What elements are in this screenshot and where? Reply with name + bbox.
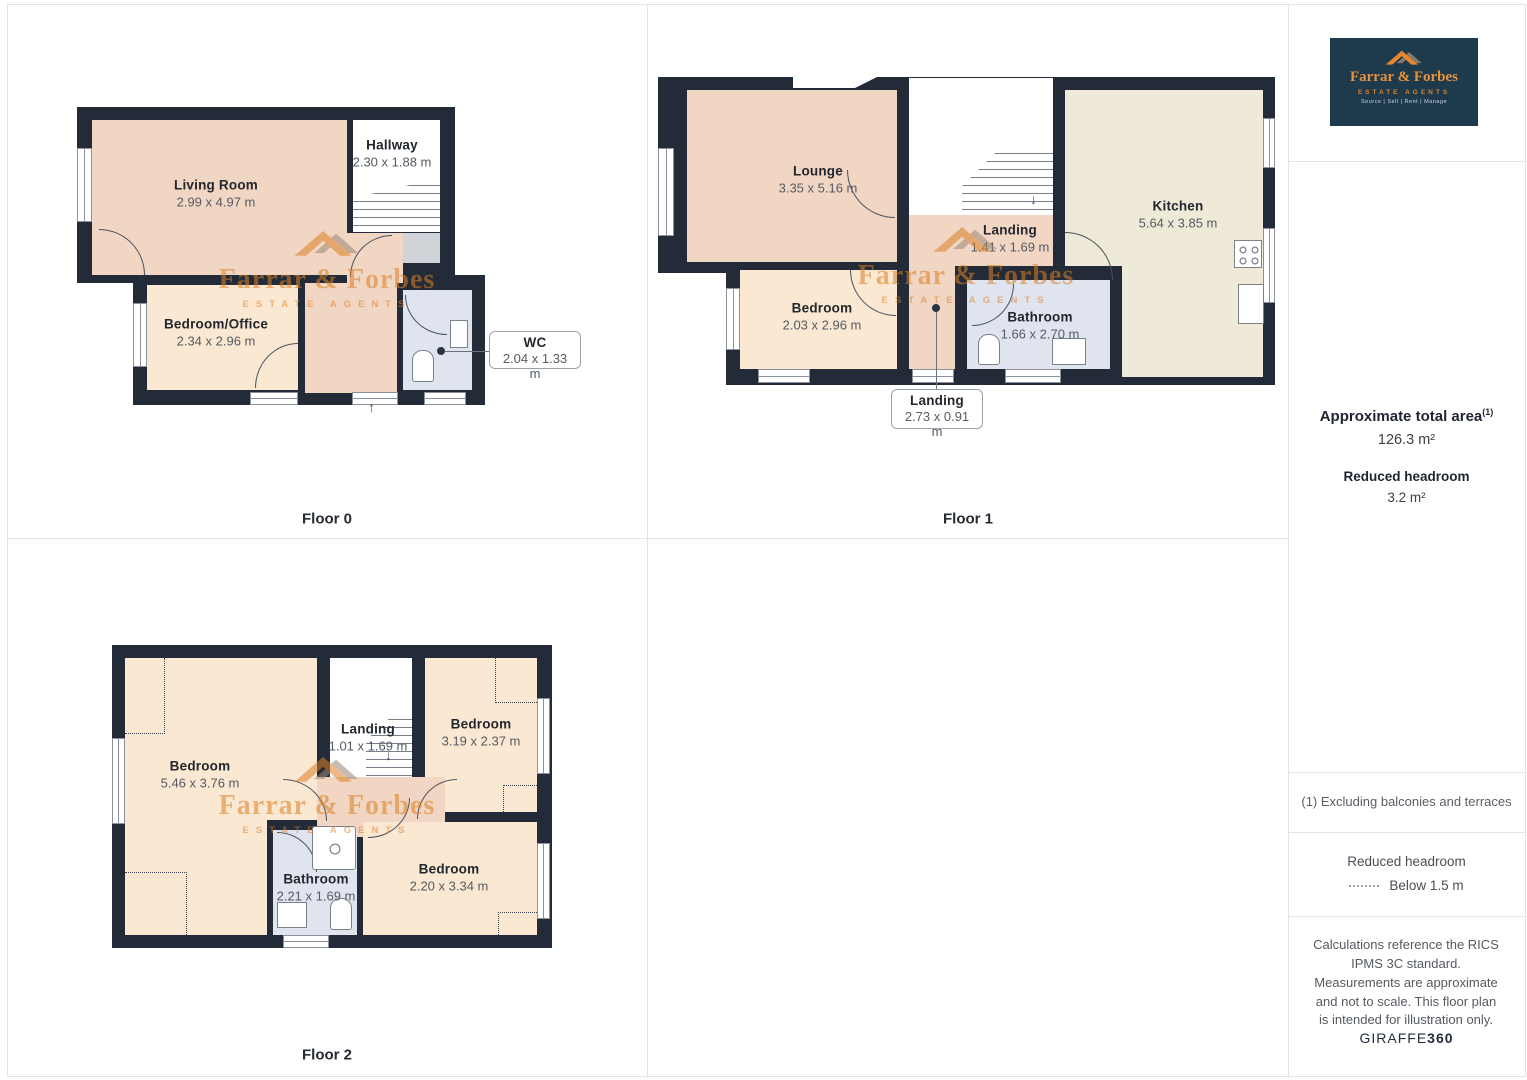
divider-sidebar-3 [1288, 832, 1525, 833]
stairs-arrow: ↓ [1030, 192, 1037, 206]
room-name: WC [498, 335, 572, 350]
divider-horizontal-plans [7, 538, 1288, 539]
legend-row: Below 1.5 m [1288, 878, 1525, 893]
room-fill-landing-corridor [909, 273, 957, 369]
disclaimer-text: Calculations reference the RICS IPMS 3C … [1311, 936, 1501, 1030]
wall-notch [793, 77, 855, 88]
window [1263, 228, 1275, 303]
room-dims: 2.73 x 0.91 m [900, 409, 974, 439]
room-label-landing: Landing 1.41 x 1.69 m [971, 223, 1050, 256]
window [250, 392, 298, 405]
floorplan-page: ↑ WC 2.04 x 1.33 m Living Room 2.99 x 4.… [0, 0, 1527, 1080]
room-label-bathroom: Bathroom 1.66 x 2.70 m [1001, 310, 1080, 343]
room-label-living-room: Living Room 2.99 x 4.97 m [174, 178, 258, 211]
reduced-headroom-area [495, 658, 537, 703]
total-area-value: 126.3 m² [1288, 432, 1525, 448]
window [537, 698, 550, 774]
legend-value: Below 1.5 m [1389, 878, 1463, 893]
room-label-landing: Landing 1.01 x 1.69 m [329, 722, 408, 755]
callout-dot [437, 347, 445, 355]
window [658, 148, 674, 236]
sink-icon [1238, 284, 1264, 324]
agency-name: Farrar & Forbes [1330, 69, 1478, 86]
storage-cupboard [403, 233, 440, 263]
shower-icon [312, 826, 356, 870]
room-fill-corridor [305, 283, 397, 393]
window [424, 392, 466, 405]
brand-giraffe: GIRAFFE [1359, 1030, 1427, 1046]
window [1005, 369, 1061, 383]
room-label-bedroom-bottomright: Bedroom 2.20 x 3.34 m [410, 862, 489, 895]
total-area-label: Approximate total area(1) [1288, 407, 1525, 425]
window [537, 843, 550, 919]
room-label-lounge: Lounge 3.35 x 5.16 m [779, 164, 858, 197]
floor1-label: Floor 1 [943, 511, 993, 528]
agency-tagline: ESTATE AGENTS [1330, 89, 1478, 96]
stove-icon [1234, 240, 1262, 268]
room-label-bedroom-office: Bedroom/Office 2.34 x 2.96 m [164, 317, 268, 350]
window [726, 288, 740, 350]
reduced-headroom-label: Reduced headroom [1288, 469, 1525, 484]
window [283, 935, 329, 948]
entry-door-threshold [352, 392, 398, 405]
floor2-label: Floor 2 [302, 1047, 352, 1064]
giraffe360-logo: GIRAFFE360 [1288, 1030, 1525, 1046]
roof-icon [1382, 48, 1426, 68]
floor0-label: Floor 0 [302, 511, 352, 528]
reduced-headroom-area [503, 785, 537, 812]
callout-dot [932, 304, 940, 312]
reduced-headroom-area [125, 872, 187, 935]
reduced-headroom-area [125, 658, 165, 734]
window [77, 148, 92, 222]
reduced-headroom-value: 3.2 m² [1288, 490, 1525, 505]
divider-sidebar-2 [1288, 772, 1525, 773]
toilet-icon [978, 334, 1000, 365]
callout-leader [936, 312, 937, 389]
window [758, 369, 810, 383]
sink-icon [450, 320, 468, 348]
footnote-marker: (1) [1482, 407, 1493, 417]
callout-leader [445, 351, 489, 352]
entry-arrow: ↑ [368, 400, 375, 414]
room-label-kitchen: Kitchen 5.64 x 3.85 m [1139, 199, 1218, 232]
agency-logo: Farrar & Forbes ESTATE AGENTS Source | S… [1330, 38, 1478, 126]
window [112, 738, 125, 824]
room-label-bedroom-large: Bedroom 5.46 x 3.76 m [161, 759, 240, 792]
divider-sidebar-4 [1288, 916, 1525, 917]
agency-services: Source | Sell | Rent | Manage [1330, 99, 1478, 105]
divider-sidebar-1 [1288, 161, 1525, 162]
room-label-hallway: Hallway 2.30 x 1.88 m [353, 138, 432, 171]
window [133, 303, 147, 367]
door-threshold [912, 369, 954, 383]
room-dims: 2.04 x 1.33 m [498, 351, 572, 381]
wc-callout: WC 2.04 x 1.33 m [489, 331, 581, 369]
sink-icon [277, 902, 307, 928]
brand-360: 360 [1427, 1030, 1453, 1046]
room-label-bedroom: Bedroom 2.03 x 2.96 m [783, 301, 862, 334]
divider-vertical-left [647, 4, 648, 1076]
landing-callout: Landing 2.73 x 0.91 m [891, 389, 983, 429]
toilet-icon [412, 350, 434, 382]
room-label-bathroom: Bathroom 2.21 x 1.69 m [277, 872, 356, 905]
footnote: (1) Excluding balconies and terraces [1288, 794, 1525, 809]
dotted-line-icon [1349, 885, 1379, 887]
room-name: Landing [900, 393, 974, 408]
reduced-headroom-area [498, 912, 537, 935]
room-label-bedroom-topright: Bedroom 3.19 x 2.37 m [442, 717, 521, 750]
window [1263, 118, 1275, 168]
legend-title: Reduced headroom [1288, 854, 1525, 869]
